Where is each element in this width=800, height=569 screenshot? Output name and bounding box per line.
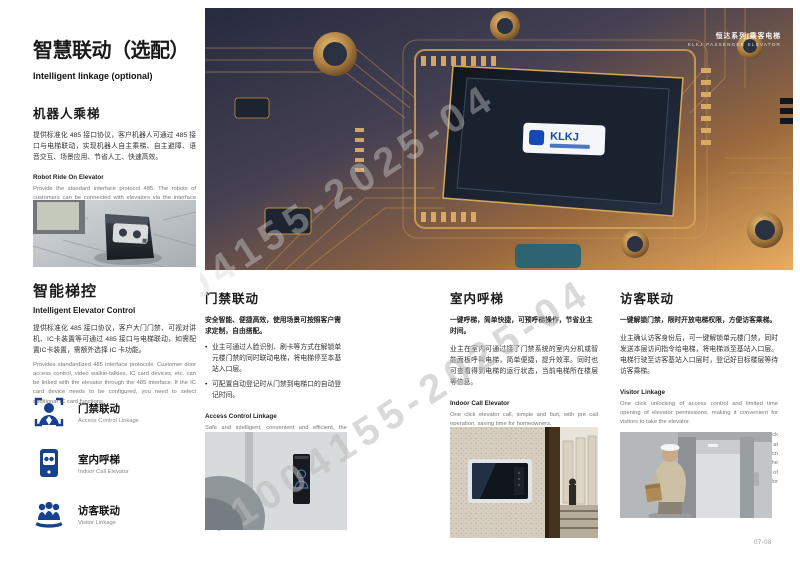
intercom-tablet-icon bbox=[33, 447, 65, 479]
column-intro-cn: 一键呼梯，简单快捷，可预呼梯操作，节省业主时间。 bbox=[450, 316, 598, 338]
column-body-cn: 业主确认访客身份后，可一键解锁单元楼门禁，同时发送本层访问指令给电梯，将电梯派至… bbox=[620, 333, 778, 378]
bullet-text: 可配置自动登记时从门禁到电梯口的自动登记时间。 bbox=[212, 380, 347, 402]
indoor-intercom-photo bbox=[450, 427, 598, 538]
face-recognition-icon bbox=[33, 396, 65, 428]
feature-visitor-linkage: 访客联动 Visitor Linkage bbox=[33, 498, 196, 530]
bullet-text: 业主可通过人脸识别、刷卡等方式在解锁单元楼门禁的同时联动电梯，将电梯停至本基站入… bbox=[212, 343, 347, 376]
feature-label-cn: 访客联动 bbox=[78, 503, 120, 518]
page-title: 智慧联动（选配） bbox=[33, 40, 196, 62]
bullet-item: • 业主可通过人脸识别、刷卡等方式在解锁单元楼门禁的同时联动电梯，将电梯停至本基… bbox=[205, 343, 347, 376]
bullet-marker: • bbox=[205, 380, 212, 402]
column-intro-cn: 一键解锁门禁，限时开放电梯权限，方便访客乘梯。 bbox=[620, 316, 778, 327]
robot-heading-en: Robot Ride On Elevator bbox=[33, 174, 196, 181]
feature-label-cn: 门禁联动 bbox=[78, 401, 139, 416]
feature-label-en: Visitor Linkage bbox=[78, 520, 120, 526]
visitors-group-icon bbox=[33, 498, 65, 530]
control-subheading-en: Intelligent Elevator Control bbox=[33, 306, 196, 315]
column-heading-en: Access Control Linkage bbox=[205, 413, 347, 420]
column-heading-cn: 室内呼梯 bbox=[450, 288, 598, 307]
page-subtitle: Intelligent linkage (optional) bbox=[33, 71, 196, 81]
robot-section-heading: 机器人乘梯 bbox=[33, 103, 196, 122]
column-intro-cn: 安全智能、便捷高效，使用场景可按照客户需求定制，自由搭配。 bbox=[205, 316, 347, 338]
feature-access-control: 门禁联动 Access Control Linkage bbox=[33, 396, 196, 428]
feature-list: 门禁联动 Access Control Linkage 室内呼梯 Indoor … bbox=[33, 396, 196, 549]
series-title-cn: 恒达系列|乘客电梯 bbox=[688, 30, 781, 40]
feature-label-en: Access Control Linkage bbox=[78, 418, 139, 424]
control-body-cn: 提供标准化 485 接口协议，客户大门门禁、可视对讲机、IC卡装置等可通过 48… bbox=[33, 323, 196, 357]
access-control-panel-photo bbox=[205, 432, 347, 530]
column-body-cn: 业主在室内可通过接了门禁系统的室内分机或智能面板呼叫电梯，简单便捷，提升效率。同… bbox=[450, 344, 598, 389]
brochure-page: 智慧联动（选配） Intelligent linkage (optional) … bbox=[0, 0, 800, 569]
page-number: 07-08 bbox=[754, 540, 772, 546]
series-title-en: KLKJ PASSENGER ELEVATOR bbox=[688, 42, 781, 47]
robot-body-cn: 提供标准化 485 接口协议，客户机器人可通过 485 接口与电梯联动，实现机器… bbox=[33, 130, 196, 164]
chip-logo: KLKJ bbox=[550, 131, 579, 144]
circuit-board-photo: KLKJ 恒达系列|乘客电梯 KLKJ PASSENGER ELEVATOR bbox=[205, 8, 793, 270]
feature-label-en: Indoor Call Elevator bbox=[78, 469, 129, 475]
visitor-delivery-photo bbox=[620, 432, 772, 518]
bullet-marker: • bbox=[205, 343, 212, 376]
control-section-heading: 智能梯控 bbox=[33, 280, 196, 301]
column-heading-en: Indoor Call Elevator bbox=[450, 400, 598, 407]
column-heading-cn: 门禁联动 bbox=[205, 288, 347, 307]
feature-label-cn: 室内呼梯 bbox=[78, 452, 129, 467]
column-heading-cn: 访客联动 bbox=[620, 288, 778, 307]
hero-caption: 恒达系列|乘客电梯 KLKJ PASSENGER ELEVATOR bbox=[688, 30, 781, 47]
bullet-item: • 可配置自动登记时从门禁到电梯口的自动登记时间。 bbox=[205, 380, 347, 402]
robot-in-elevator-photo bbox=[33, 200, 196, 267]
column-intro-en: One click unlocking of access control an… bbox=[620, 400, 778, 428]
elevator-control-section: 智能梯控 Intelligent Elevator Control 提供标准化 … bbox=[33, 280, 196, 407]
feature-indoor-call: 室内呼梯 Indoor Call Elevator bbox=[33, 447, 196, 479]
column-heading-en: Visitor Linkage bbox=[620, 389, 778, 396]
